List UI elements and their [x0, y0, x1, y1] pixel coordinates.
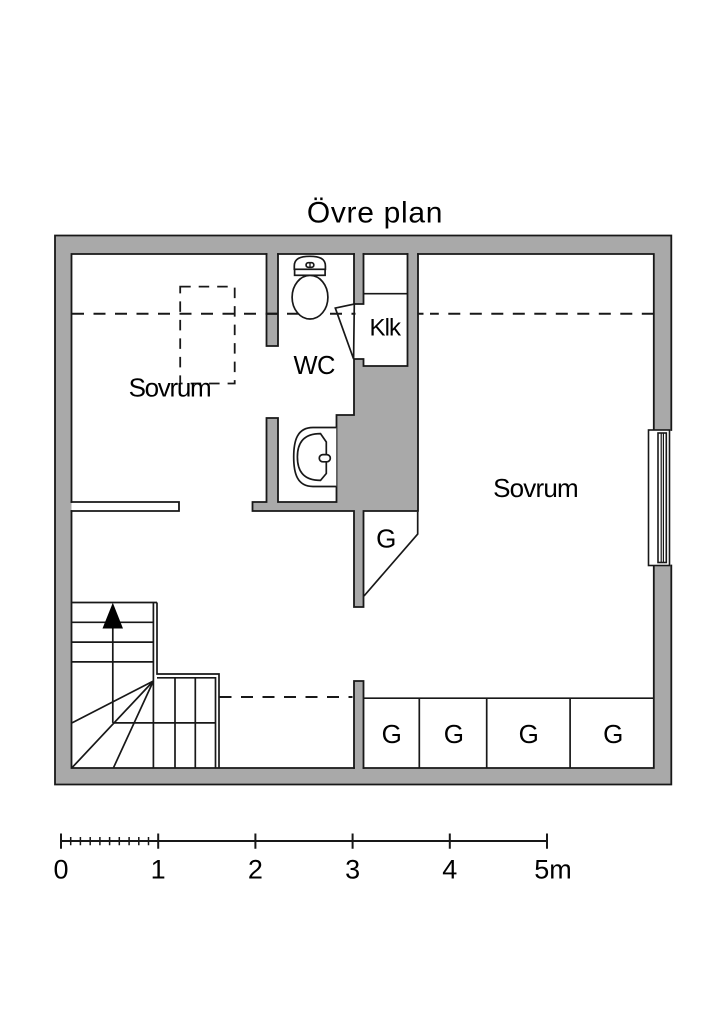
svg-text:G: G	[376, 523, 396, 553]
svg-text:4: 4	[442, 854, 457, 884]
svg-text:5m: 5m	[534, 854, 572, 884]
svg-text:G: G	[382, 719, 402, 749]
svg-text:G: G	[519, 719, 539, 749]
svg-text:Sovrum: Sovrum	[493, 473, 578, 503]
svg-text:0: 0	[53, 854, 68, 884]
svg-text:Övre plan: Övre plan	[307, 197, 443, 230]
svg-text:2: 2	[248, 854, 263, 884]
svg-text:WC: WC	[293, 352, 335, 380]
svg-text:Sovrum: Sovrum	[129, 373, 211, 403]
svg-text:Klk: Klk	[369, 315, 402, 342]
svg-text:G: G	[444, 719, 464, 749]
svg-text:G: G	[603, 719, 623, 749]
svg-text:1: 1	[151, 854, 166, 884]
svg-text:3: 3	[345, 854, 360, 884]
